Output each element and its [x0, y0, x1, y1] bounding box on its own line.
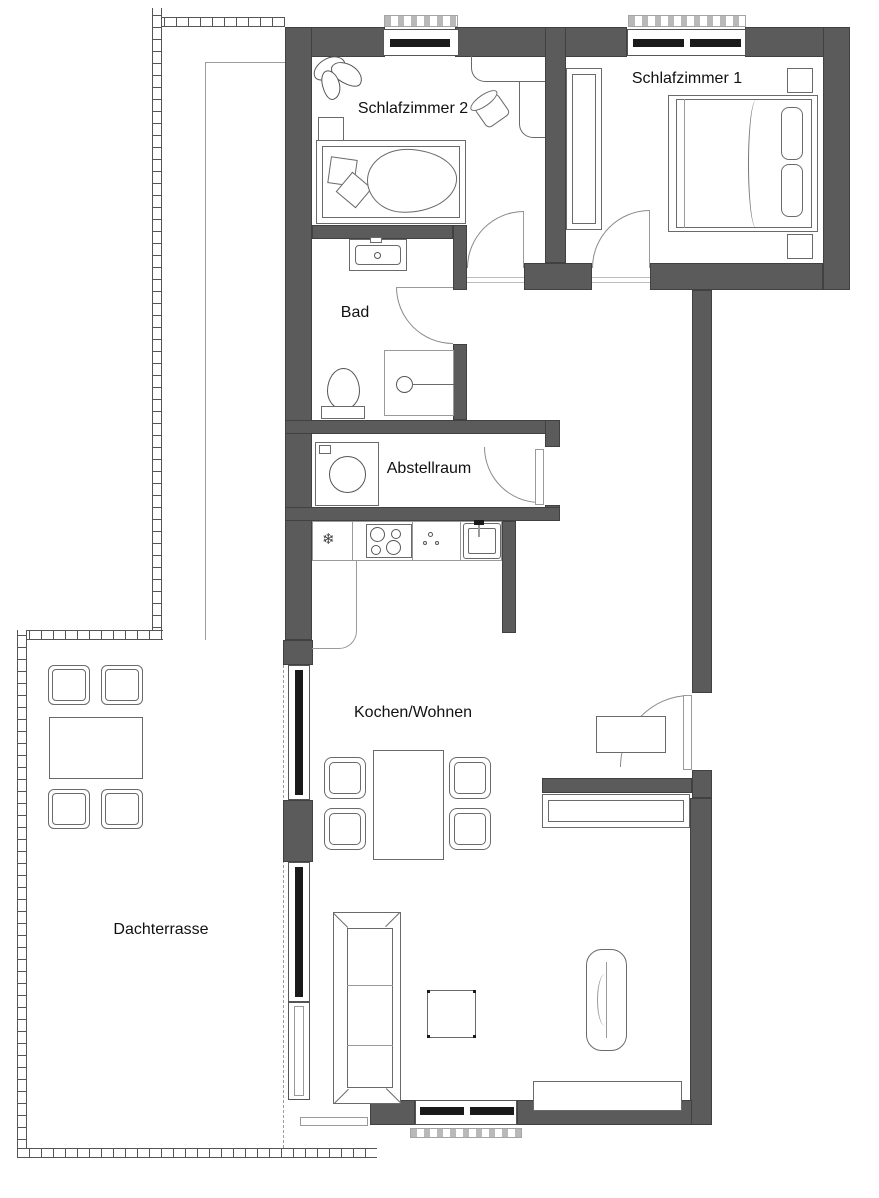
- terrace-railing-left-lower: [17, 630, 27, 1152]
- glass-front-mid-glazing: [295, 867, 303, 997]
- wall-kitchen-partition: [502, 521, 516, 633]
- door-leaf-entrance: [683, 695, 692, 770]
- terrace-surface-edge: [205, 62, 285, 640]
- duvet-edge: [748, 100, 764, 228]
- washing-machine-panel: [319, 445, 331, 454]
- glass-front-upper-glazing: [295, 670, 303, 795]
- corner-desk: [471, 56, 545, 82]
- wall-bad-east-upper: [453, 225, 467, 290]
- door-arc-bad: [396, 287, 453, 344]
- shoe-cabinet: [596, 716, 666, 753]
- dining-table: [373, 750, 444, 860]
- counter-separator: [412, 521, 413, 561]
- shower-arm: [412, 384, 454, 385]
- room-label-abstellraum: Abstellraum: [387, 460, 471, 478]
- door-leaf-bad: [396, 287, 453, 288]
- wall-bad-north: [312, 225, 453, 239]
- terrace-railing-left-upper: [152, 8, 162, 640]
- terrace-table: [49, 717, 143, 779]
- floor-plan: ❄ Schlafzimmer 2 Schlafz: [0, 0, 879, 1198]
- sliding-door-pane: [294, 1006, 304, 1096]
- window-glazing-schlafzimmer1-right: [690, 39, 741, 47]
- nightstand: [787, 234, 813, 259]
- wall-north-b: [455, 27, 627, 57]
- fridge-snowflake-icon: ❄: [322, 530, 335, 548]
- toilet: [327, 368, 360, 410]
- wall-west-pier-top: [283, 640, 313, 665]
- dining-chair-seat: [454, 813, 486, 845]
- room-label-schlafzimmer1: Schlafzimmer 1: [632, 70, 742, 88]
- wall-west-pier-mid: [283, 800, 313, 862]
- burner: [371, 545, 381, 555]
- door-threshold-schlafzimmer1: [592, 277, 650, 283]
- south-sideboard: [533, 1081, 682, 1111]
- terrace-railing-bottom: [17, 1148, 377, 1158]
- toilet-cistern: [321, 406, 365, 419]
- wall-bad-east-lower: [453, 344, 467, 420]
- lounge-chair-curve: [597, 974, 613, 1026]
- burner: [370, 527, 385, 542]
- coffee-table-corner: [473, 1035, 476, 1038]
- coffee-table: [427, 990, 476, 1038]
- sink-drain: [374, 252, 381, 259]
- door-leaf-schlafzimmer1: [649, 210, 650, 268]
- door-leaf-abstellraum: [535, 449, 544, 505]
- window-glazing-south-left: [420, 1107, 464, 1115]
- counter-detail: [423, 541, 427, 545]
- wall-entry-partition: [542, 778, 692, 793]
- wardrobe-inner: [572, 74, 596, 224]
- dining-chair-seat: [329, 762, 361, 794]
- window-sill-schlafzimmer1: [628, 15, 746, 27]
- counter-separator: [460, 521, 461, 561]
- kitchen-counter-return: [312, 561, 357, 649]
- terrace-chair-seat: [52, 793, 86, 825]
- wall-abstell-north: [285, 420, 560, 434]
- pillow: [781, 164, 803, 217]
- door-arc-schlafzimmer2: [467, 211, 524, 268]
- window-sill-south: [410, 1128, 522, 1138]
- door-leaf-schlafzimmer2: [523, 211, 524, 268]
- pillow: [781, 107, 803, 160]
- room-label-kochen-wohnen: Kochen/Wohnen: [354, 704, 472, 722]
- dining-chair-seat: [329, 813, 361, 845]
- sofa-cushion-line: [347, 1045, 393, 1046]
- washing-machine-drum: [329, 456, 366, 493]
- shower-head: [396, 376, 413, 393]
- room-label-bad: Bad: [341, 304, 369, 322]
- terrace-chair-seat: [105, 669, 139, 701]
- roof-overhang-line: [283, 645, 284, 1148]
- sliding-door-open-leaf: [300, 1117, 368, 1126]
- door-arc-abstellraum: [484, 447, 540, 503]
- window-glazing-schlafzimmer2: [390, 39, 450, 47]
- terrace-chair-seat: [52, 669, 86, 701]
- sofa-cushion-line: [347, 985, 393, 986]
- wall-abstell-east-upper: [545, 420, 560, 447]
- coffee-table-corner: [427, 1035, 430, 1038]
- terrace-chair-seat: [105, 793, 139, 825]
- counter-detail: [435, 541, 439, 545]
- counter-detail: [428, 532, 433, 537]
- door-threshold-schlafzimmer2: [467, 277, 524, 283]
- room-label-schlafzimmer2: Schlafzimmer 2: [358, 100, 468, 118]
- nightstand: [787, 68, 813, 93]
- wall-divider-bedrooms: [545, 27, 566, 263]
- wall-west-upper: [285, 27, 312, 640]
- window-glazing-south-right: [470, 1107, 514, 1115]
- window-glazing-schlafzimmer1-left: [633, 39, 684, 47]
- kitchen-sink-basin: [468, 528, 496, 554]
- burner: [386, 540, 401, 555]
- burner: [391, 529, 401, 539]
- entry-sideboard-inner: [548, 800, 684, 822]
- office-chair: [467, 85, 514, 132]
- kitchen-tap-stem: [478, 525, 480, 537]
- wall-entry-corner: [692, 770, 712, 798]
- shower: [384, 350, 454, 416]
- wall-band-a: [524, 263, 592, 290]
- corner-desk: [519, 82, 545, 138]
- terrace-railing-top: [152, 17, 285, 27]
- wall-east-schlafzimmer1: [823, 27, 850, 290]
- coffee-table-corner: [427, 990, 430, 993]
- wall-east-hall: [692, 290, 712, 693]
- sofa-seat: [347, 928, 393, 1088]
- coffee-table-corner: [473, 990, 476, 993]
- wall-band-b: [650, 263, 823, 290]
- terrace-railing-step: [17, 630, 163, 640]
- dining-chair-seat: [454, 762, 486, 794]
- window-sill-schlafzimmer2: [384, 15, 458, 27]
- counter-separator: [352, 521, 353, 561]
- wall-east-lower: [690, 798, 712, 1125]
- bed-foot-line: [684, 99, 685, 228]
- sink-tap: [370, 237, 382, 243]
- room-label-dachterrasse: Dachterrasse: [113, 921, 208, 939]
- wall-abstell-south: [285, 507, 560, 521]
